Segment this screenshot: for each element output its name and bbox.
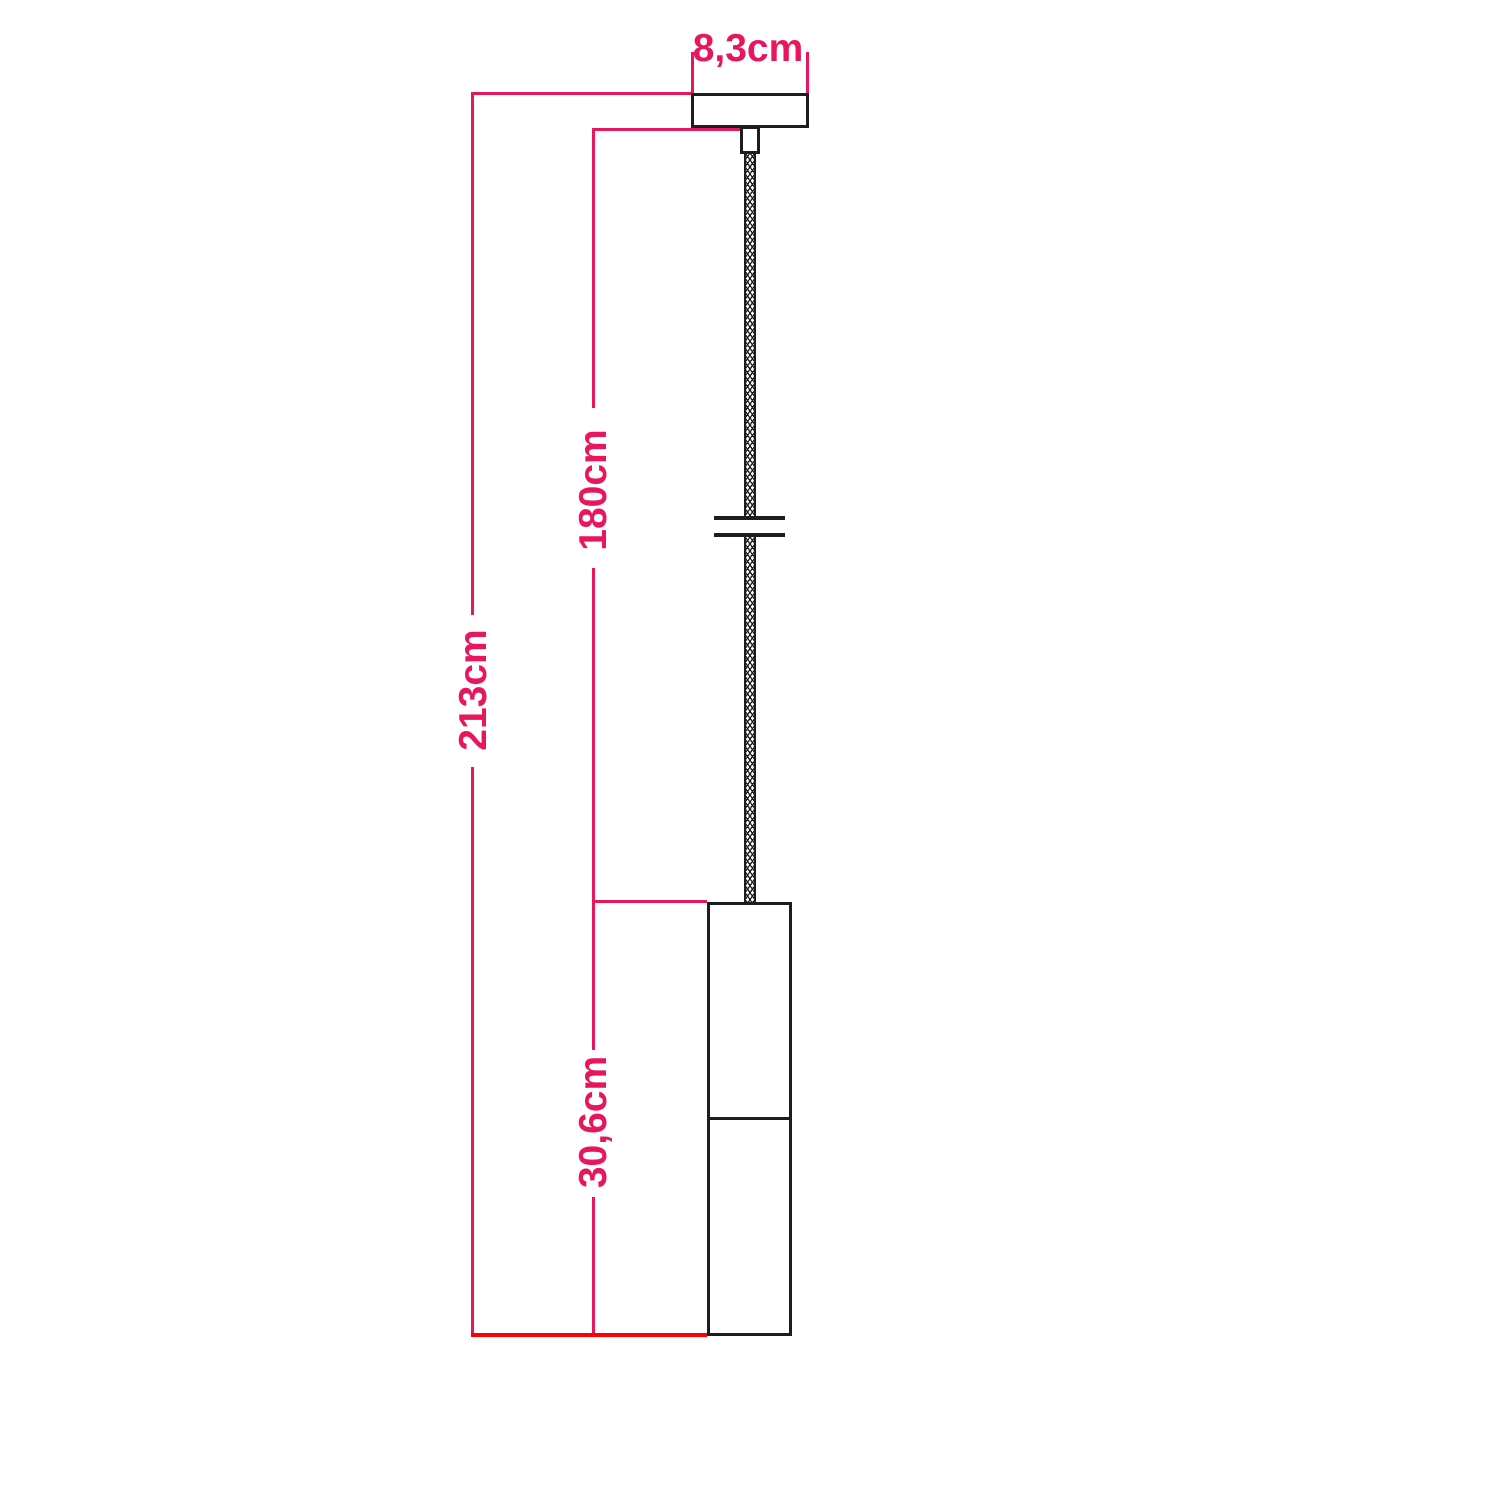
braided-cable-lower	[744, 537, 756, 902]
tick-canopy-width-right	[806, 52, 809, 93]
dimension-line-lamp-height-upper	[592, 900, 595, 1050]
pendant-lamp-dimension-diagram: 8,3cm 213cm 180cm 30,6cm	[0, 0, 1500, 1500]
extension-line-total-top	[471, 92, 691, 95]
dimension-line-cable-length-upper	[592, 128, 595, 408]
extension-line-cable-top	[592, 128, 740, 131]
lamp-height-label: 30,6cm	[572, 1056, 616, 1188]
dimension-line-cable-length-lower	[592, 568, 595, 902]
braided-cable-upper	[744, 152, 756, 518]
cable-grip-outline	[740, 126, 760, 154]
baseline-bottom-red	[471, 1333, 707, 1337]
cable-length-label: 180cm	[572, 429, 616, 550]
extension-line-lamp-top	[592, 900, 707, 903]
dimension-line-total-height-upper	[471, 92, 474, 615]
total-height-label: 213cm	[452, 629, 496, 750]
canopy-width-label: 8,3cm	[693, 27, 804, 71]
cable-clamp-top-line	[714, 516, 785, 520]
ceiling-canopy-outline	[691, 93, 809, 128]
dimension-line-total-height-lower	[471, 767, 474, 1336]
dimension-line-lamp-height-lower	[592, 1197, 595, 1336]
lamp-body-divider-line	[707, 1117, 792, 1120]
